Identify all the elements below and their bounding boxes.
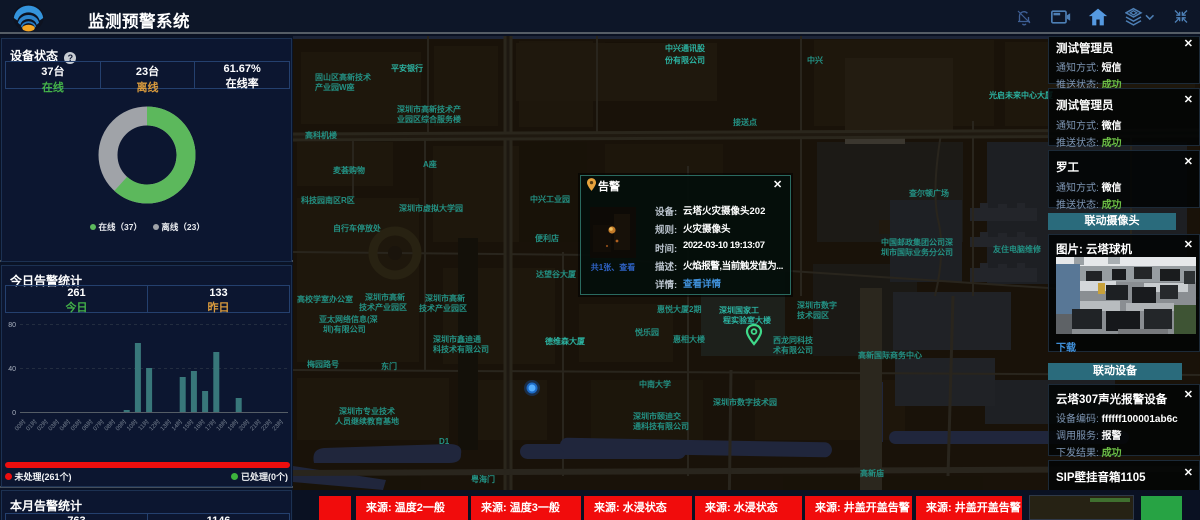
svg-text:18时: 18时	[214, 418, 229, 433]
svg-text:05时: 05时	[69, 418, 84, 433]
svg-text:份有限公司: 份有限公司	[665, 55, 705, 65]
svg-text:达望谷大厦: 达望谷大厦	[536, 269, 577, 279]
svg-text:通科技有限公司: 通科技有限公司	[633, 421, 689, 431]
svg-text:高新国际商务中心: 高新国际商务中心	[858, 350, 922, 360]
svg-text:技术园区: 技术园区	[797, 310, 829, 320]
svg-text:中兴工业园: 中兴工业园	[530, 194, 570, 204]
svg-text:08时: 08时	[102, 418, 117, 433]
svg-text:14时: 14时	[170, 418, 185, 433]
svg-text:07时: 07时	[91, 418, 106, 433]
svg-text:20时: 20时	[237, 418, 252, 433]
svg-text:粤海门: 粤海门	[471, 474, 495, 484]
svg-text:A座: A座	[423, 159, 437, 169]
svg-text:40: 40	[8, 366, 16, 373]
svg-text:深圳市数字: 深圳市数字	[797, 300, 837, 310]
svg-text:15时: 15时	[181, 418, 196, 433]
svg-text:深圳市数字技术园: 深圳市数字技术园	[713, 397, 777, 407]
svg-text:深圳市高新: 深圳市高新	[425, 293, 465, 303]
svg-text:德维森大厦: 德维森大厦	[545, 336, 586, 346]
svg-text:技术产业园区: 技术产业园区	[419, 303, 467, 313]
svg-text:高新庙: 高新庙	[860, 468, 884, 478]
svg-text:中南大学: 中南大学	[639, 379, 671, 389]
svg-text:01时: 01时	[24, 418, 39, 433]
svg-text:术有限公司: 术有限公司	[772, 345, 813, 355]
svg-text:友住电脑维修: 友住电脑维修	[992, 244, 1042, 254]
svg-text:固山区高新技术: 固山区高新技术	[315, 72, 371, 82]
svg-text:科技园南区R区: 科技园南区R区	[301, 195, 355, 205]
svg-text:09时: 09时	[114, 418, 129, 433]
svg-text:人员继续教育基地: 人员继续教育基地	[335, 416, 399, 426]
svg-text:19时: 19时	[226, 418, 241, 433]
svg-text:惠相大楼: 惠相大楼	[673, 334, 705, 344]
svg-text:技术产业园区: 技术产业园区	[359, 302, 407, 312]
svg-text:17时: 17时	[203, 418, 218, 433]
svg-text:产业园W座: 产业园W座	[315, 82, 355, 92]
svg-text:深圳市颐迪交: 深圳市颐迪交	[633, 411, 681, 421]
svg-text:自行车停放处: 自行车停放处	[333, 223, 382, 233]
svg-text:D1: D1	[439, 437, 450, 446]
svg-text:10时: 10时	[125, 418, 140, 433]
svg-text:东门: 东门	[381, 361, 397, 371]
svg-text:业园区综合服务楼: 业园区综合服务楼	[397, 114, 461, 124]
svg-text:04时: 04时	[58, 418, 73, 433]
svg-text:21时: 21时	[248, 418, 263, 433]
svg-text:00时: 00时	[13, 418, 28, 433]
svg-text:亚太网络信息(深: 亚太网络信息(深	[319, 314, 378, 324]
svg-text:80: 80	[8, 322, 16, 329]
svg-text:圳市国际业务分公司: 圳市国际业务分公司	[881, 247, 953, 257]
svg-text:高科机楼: 高科机楼	[305, 130, 337, 140]
svg-text:中兴通讯股: 中兴通讯股	[665, 43, 705, 53]
svg-text:梅园路号: 梅园路号	[307, 359, 339, 369]
svg-text:接送点: 接送点	[733, 117, 757, 127]
svg-text:圳)有限公司: 圳)有限公司	[323, 324, 366, 334]
svg-text:22时: 22时	[259, 418, 274, 433]
svg-text:西龙同科技: 西龙同科技	[773, 335, 814, 345]
svg-text:查尔顿广场: 查尔顿广场	[909, 188, 949, 198]
svg-text:0: 0	[12, 410, 16, 417]
svg-text:02时: 02时	[35, 418, 50, 433]
svg-text:06时: 06时	[80, 418, 95, 433]
svg-text:科技术有限公司: 科技术有限公司	[433, 344, 489, 354]
svg-text:深圳市专业技术: 深圳市专业技术	[339, 406, 395, 416]
svg-text:深圳市鑫迪通: 深圳市鑫迪通	[433, 334, 481, 344]
svg-text:13时: 13时	[158, 418, 173, 433]
svg-text:深圳市高新: 深圳市高新	[365, 292, 405, 302]
svg-text:深圳国家工: 深圳国家工	[719, 305, 759, 315]
svg-text:程实验室大楼: 程实验室大楼	[723, 315, 771, 325]
svg-text:11时: 11时	[136, 418, 150, 432]
svg-text:23时: 23时	[270, 418, 285, 433]
svg-text:03时: 03时	[46, 418, 61, 433]
svg-text:光启未来中心大厦: 光启未来中心大厦	[988, 90, 1054, 100]
svg-text:中兴: 中兴	[807, 55, 823, 65]
svg-text:中国邮政集团公司深: 中国邮政集团公司深	[881, 237, 953, 247]
svg-text:深圳市高新技术产: 深圳市高新技术产	[397, 104, 461, 114]
svg-text:便利店: 便利店	[535, 233, 559, 243]
svg-text:悦乐园: 悦乐园	[635, 327, 659, 337]
svg-text:12时: 12时	[147, 418, 162, 433]
svg-text:深圳市虚拟大学园: 深圳市虚拟大学园	[399, 203, 463, 213]
svg-text:惠悦大厦2期: 惠悦大厦2期	[657, 304, 701, 314]
svg-text:麦荟购物: 麦荟购物	[333, 165, 365, 175]
svg-text:平安银行: 平安银行	[391, 63, 423, 73]
svg-text:高校学室办公室: 高校学室办公室	[297, 294, 353, 304]
svg-text:16时: 16时	[192, 418, 207, 433]
